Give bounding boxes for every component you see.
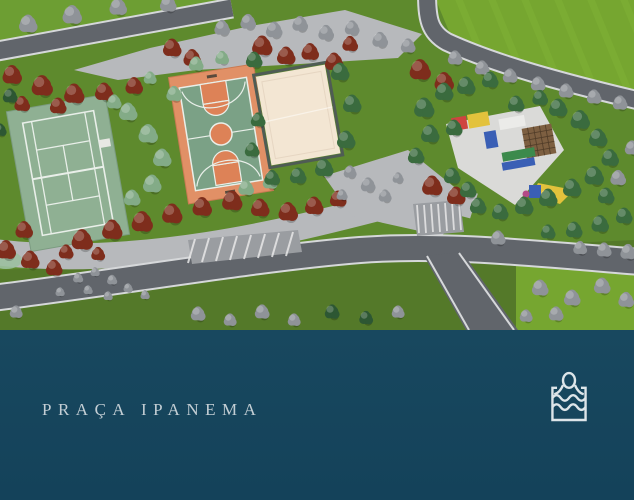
- title-banner: PRAÇA IPANEMA: [0, 330, 634, 500]
- sand-volleyball-court: [254, 62, 343, 167]
- park-aerial-render: [0, 0, 634, 330]
- park-scene: [0, 0, 634, 330]
- water-wave-top: [552, 395, 585, 401]
- swimmer-arm-left: [554, 385, 563, 394]
- swimmer-head: [563, 373, 575, 388]
- screenshot: PRAÇA IPANEMA: [0, 0, 634, 500]
- water-wave-bottom: [552, 404, 585, 410]
- pool-swimmer-icon: [546, 368, 592, 426]
- swimmer-arm-right: [575, 385, 584, 394]
- play-box-blue: [529, 185, 541, 198]
- park-title: PRAÇA IPANEMA: [42, 400, 262, 420]
- play-dot-pink: [523, 191, 530, 198]
